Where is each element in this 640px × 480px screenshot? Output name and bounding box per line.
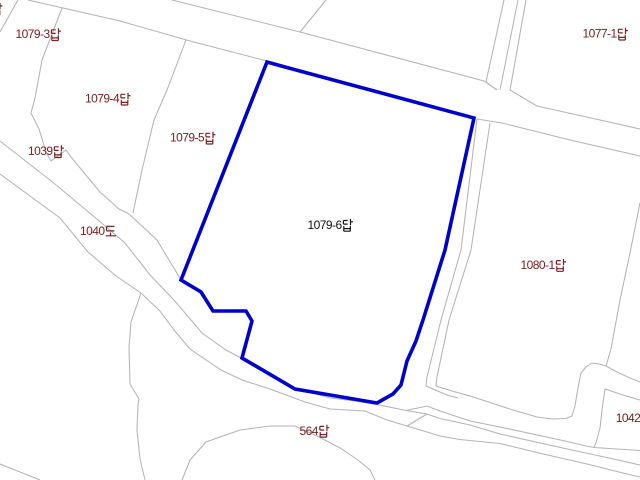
svg-text:1079-6: 1079-6: [308, 218, 343, 232]
svg-text:1040: 1040: [80, 224, 105, 238]
svg-text:1042-1: 1042-1: [616, 411, 640, 425]
svg-text:1079-3: 1079-3: [16, 27, 51, 41]
svg-text:1080-1: 1080-1: [521, 258, 556, 272]
svg-text:564: 564: [300, 424, 319, 438]
svg-text:1079-5: 1079-5: [170, 131, 205, 145]
svg-text:1039: 1039: [28, 144, 53, 158]
svg-text:1077-1: 1077-1: [583, 27, 618, 41]
svg-text:1079-4: 1079-4: [85, 92, 120, 106]
